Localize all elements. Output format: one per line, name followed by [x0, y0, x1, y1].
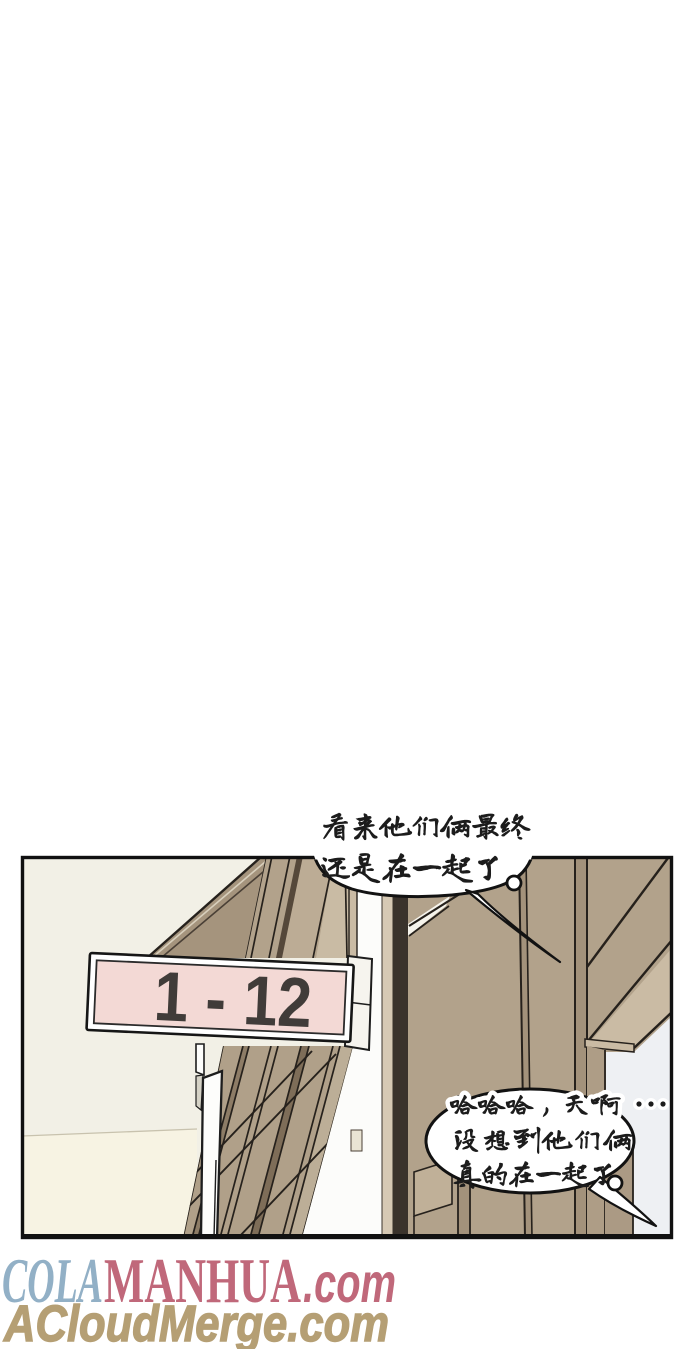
svg-text:1 - 12: 1 - 12: [152, 957, 313, 1042]
svg-text:ACloudMerge.com: ACloudMerge.com: [2, 1295, 389, 1349]
